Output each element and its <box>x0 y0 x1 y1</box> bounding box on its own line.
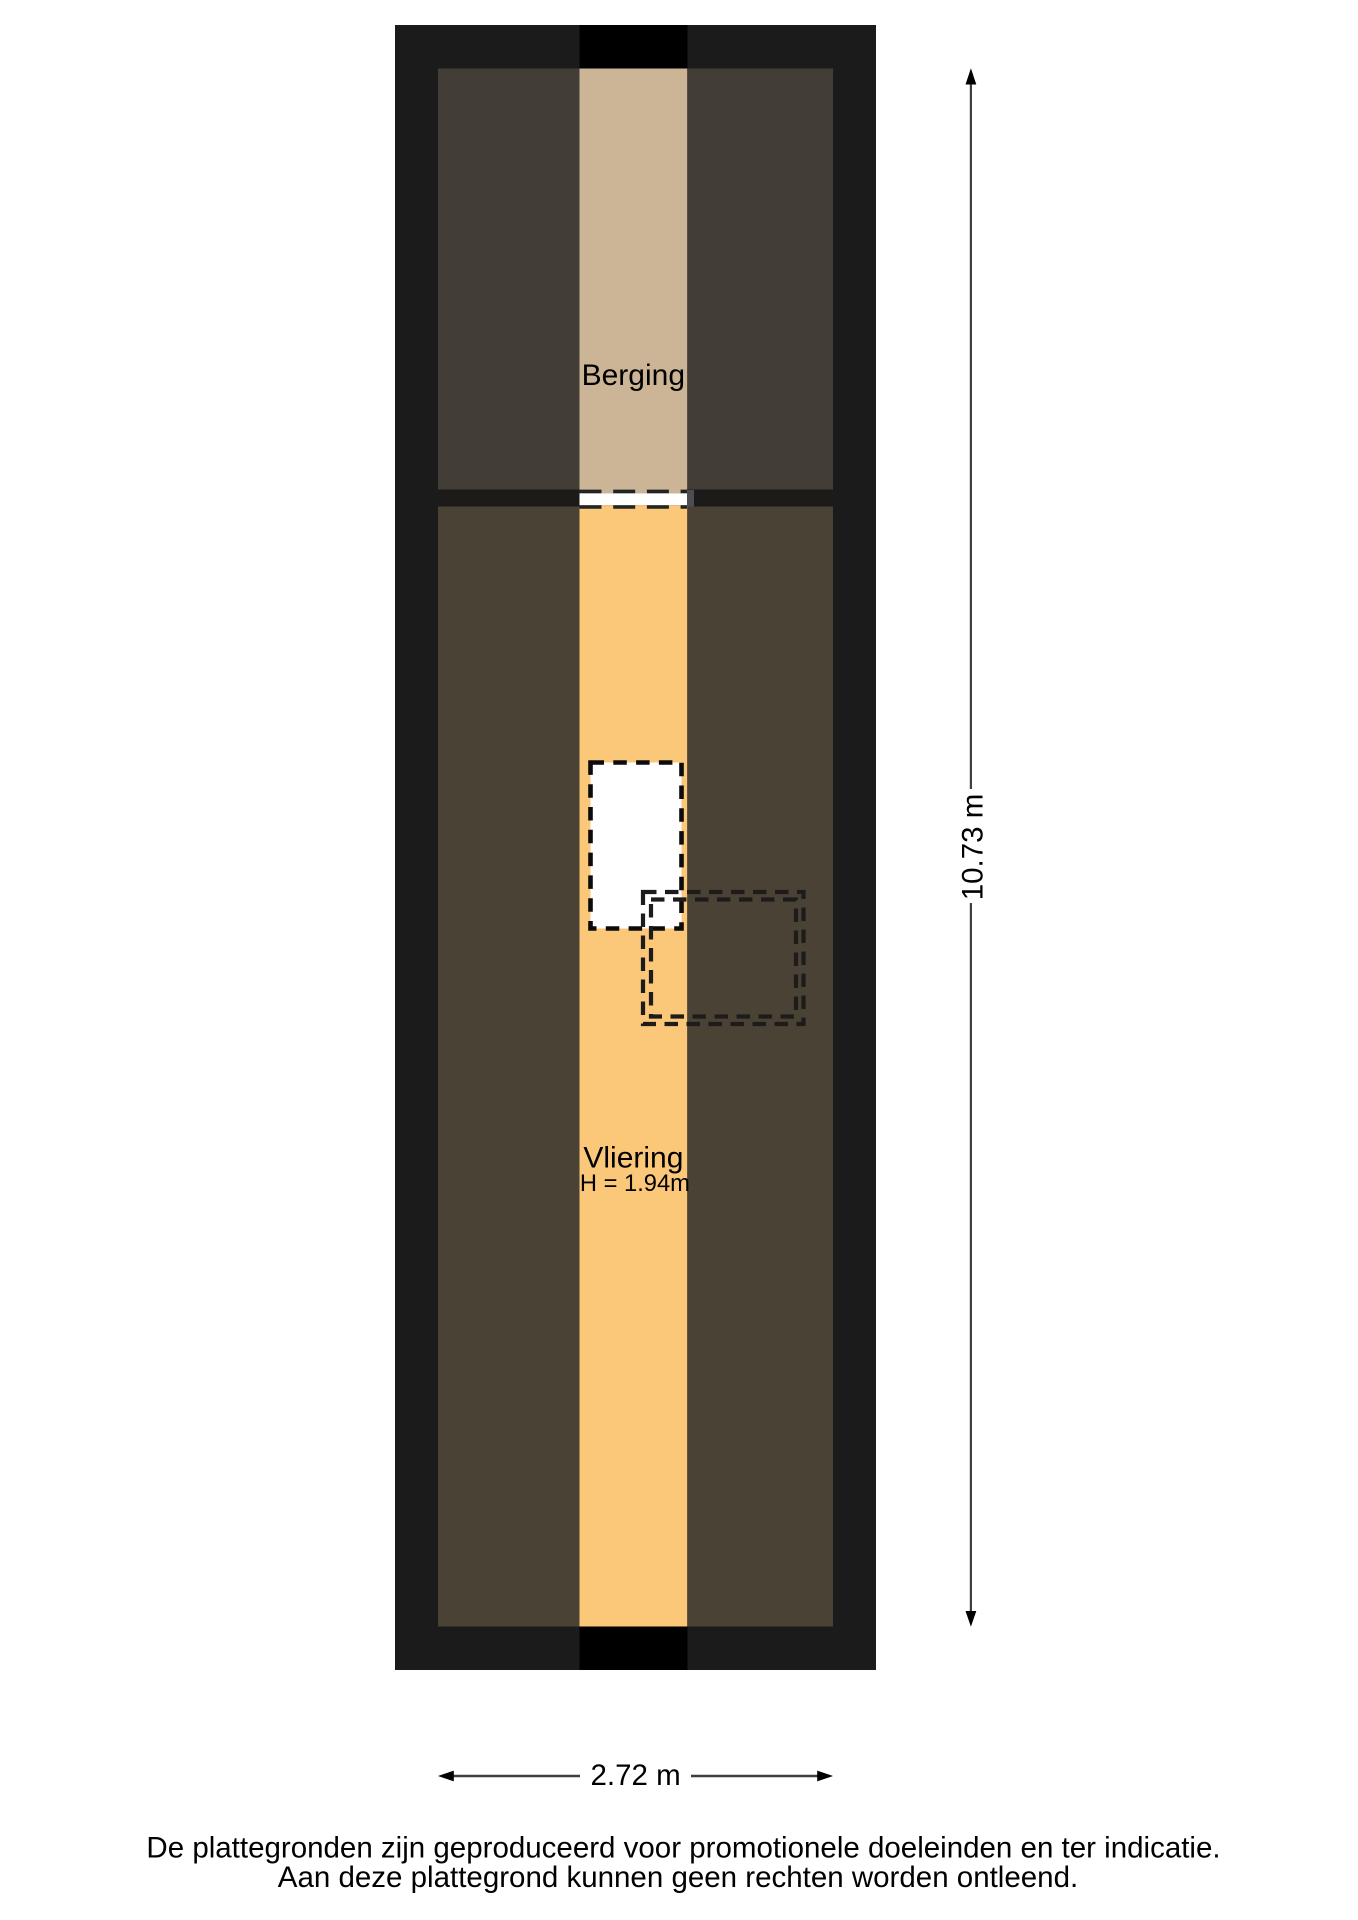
svg-text:10.73 m: 10.73 m <box>956 794 989 901</box>
svg-text:Vliering: Vliering <box>583 1141 683 1174</box>
svg-text:2.72 m: 2.72 m <box>591 1759 681 1792</box>
svg-text:Aan deze plattegrond kunnen ge: Aan deze plattegrond kunnen geen rechten… <box>278 1861 1078 1894</box>
svg-text:Berging: Berging <box>582 359 685 392</box>
svg-text:De plattegronden zijn geproduc: De plattegronden zijn geproduceerd voor … <box>146 1832 1220 1865</box>
svg-text:H = 1.94m: H = 1.94m <box>580 1171 690 1197</box>
